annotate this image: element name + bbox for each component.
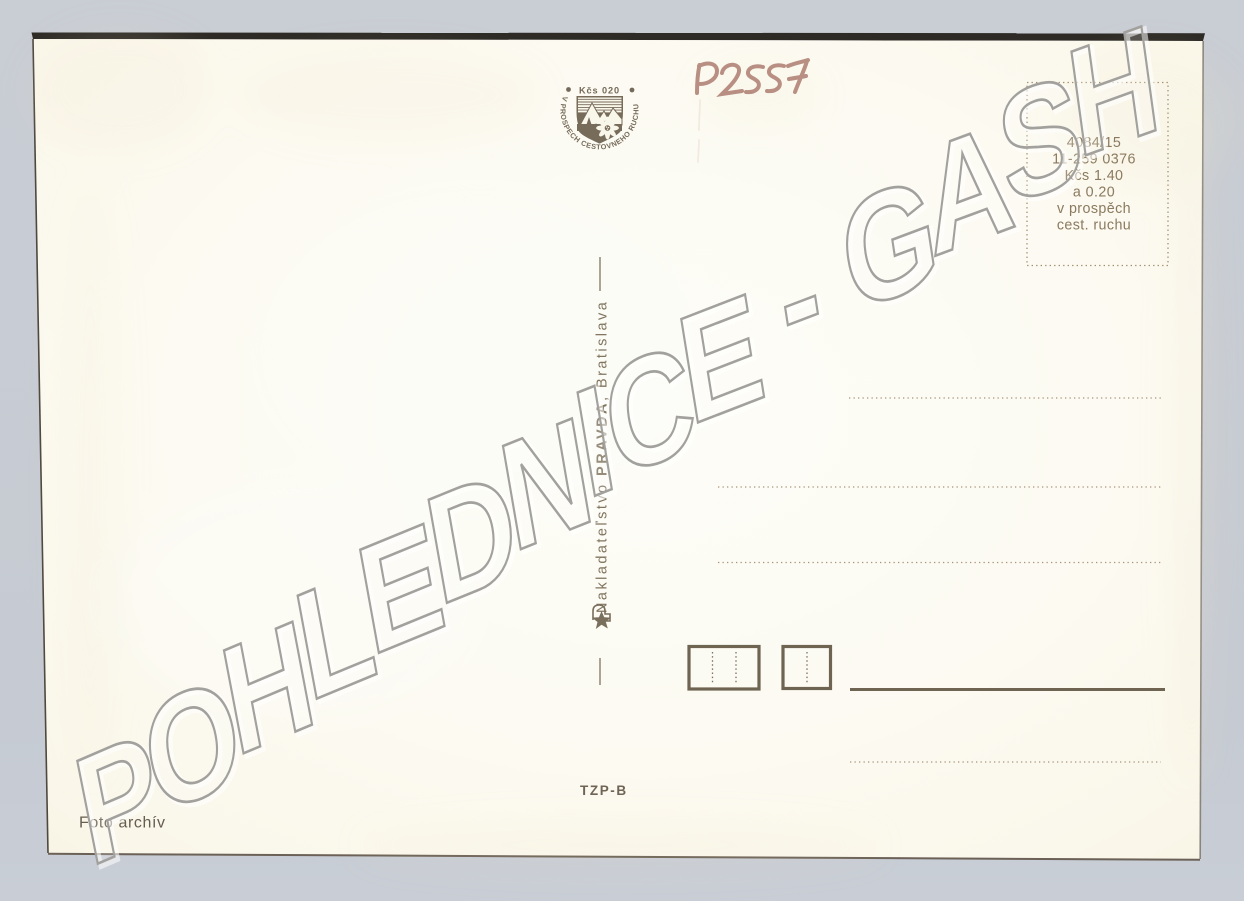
svg-text:TZP-B: TZP-B	[580, 783, 628, 798]
svg-text:Kčs 020: Kčs 020	[579, 86, 620, 96]
